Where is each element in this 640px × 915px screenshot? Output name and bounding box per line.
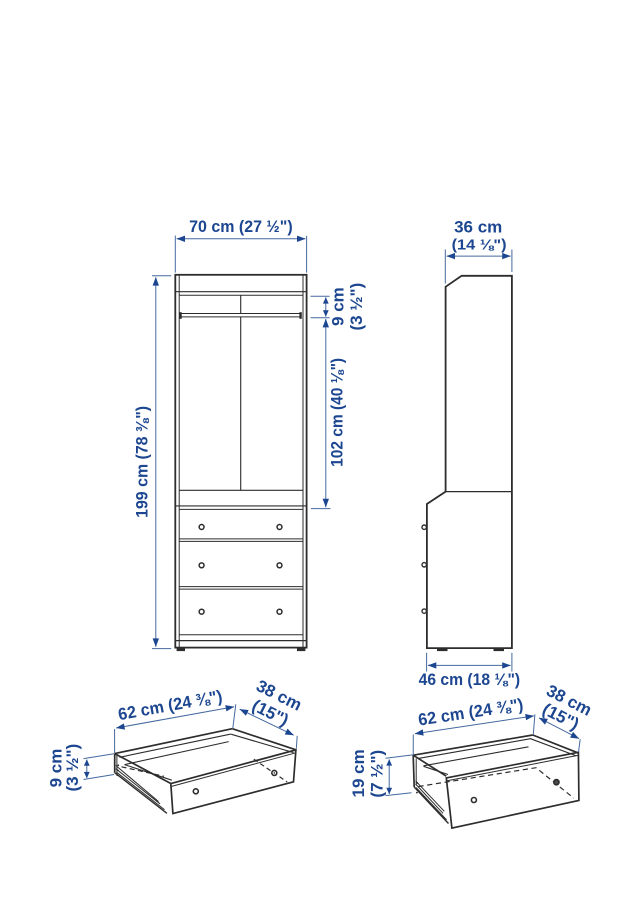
svg-text:(3 ½"): (3 ½") — [63, 744, 82, 792]
svg-text:19 cm: 19 cm — [349, 749, 368, 797]
svg-text:36 cm: 36 cm — [454, 218, 502, 237]
svg-text:(3 ½"): (3 ½") — [347, 283, 366, 331]
svg-text:(7 ½"): (7 ½") — [367, 750, 386, 798]
svg-text:9 cm: 9 cm — [328, 287, 347, 326]
svg-text:70 cm (27 ½"): 70 cm (27 ½") — [189, 217, 293, 236]
svg-text:199 cm (78 ⅜"): 199 cm (78 ⅜") — [133, 406, 152, 518]
svg-text:102 cm (40 ⅛"): 102 cm (40 ⅛") — [328, 358, 347, 467]
svg-text:(14 ⅛"): (14 ⅛") — [452, 237, 507, 253]
svg-text:62 cm (24 ⅜"): 62 cm (24 ⅜") — [417, 695, 525, 730]
svg-text:46 cm (18 ⅛"): 46 cm (18 ⅛") — [419, 670, 521, 689]
